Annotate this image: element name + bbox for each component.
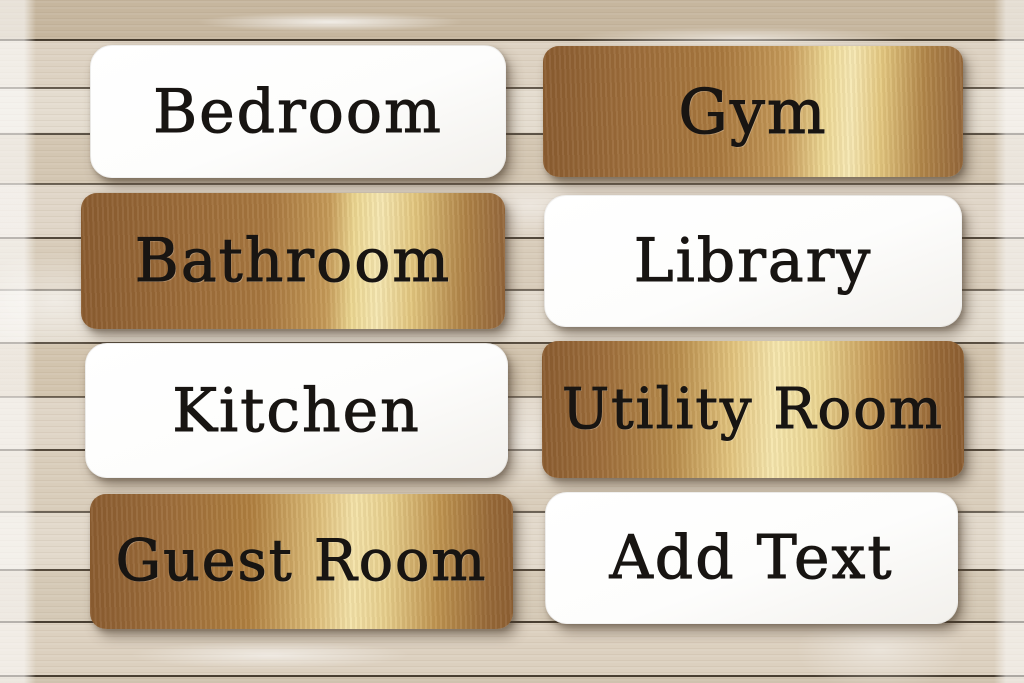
sign-text: Bedroom [153,82,443,142]
product-photo: Bedroom Gym Bathroom Library Kitchen Uti… [0,0,1024,683]
room-sign-guest-room: Guest Room [90,494,513,629]
sign-text: Add Text [609,528,893,588]
sign-text: Library [634,231,872,291]
room-sign-add-text: Add Text [545,492,958,624]
sign-text: Utility Room [562,382,944,438]
room-sign-gym: Gym [543,46,963,177]
room-sign-library: Library [544,195,962,327]
sign-text: Bathroom [135,231,451,291]
sign-text: Kitchen [172,381,421,441]
room-sign-bathroom: Bathroom [81,193,505,329]
room-sign-utility-room: Utility Room [542,341,964,478]
room-sign-bedroom: Bedroom [90,45,506,178]
room-sign-kitchen: Kitchen [85,343,508,478]
sign-text: Gym [678,81,827,143]
sign-text: Guest Room [116,533,488,590]
